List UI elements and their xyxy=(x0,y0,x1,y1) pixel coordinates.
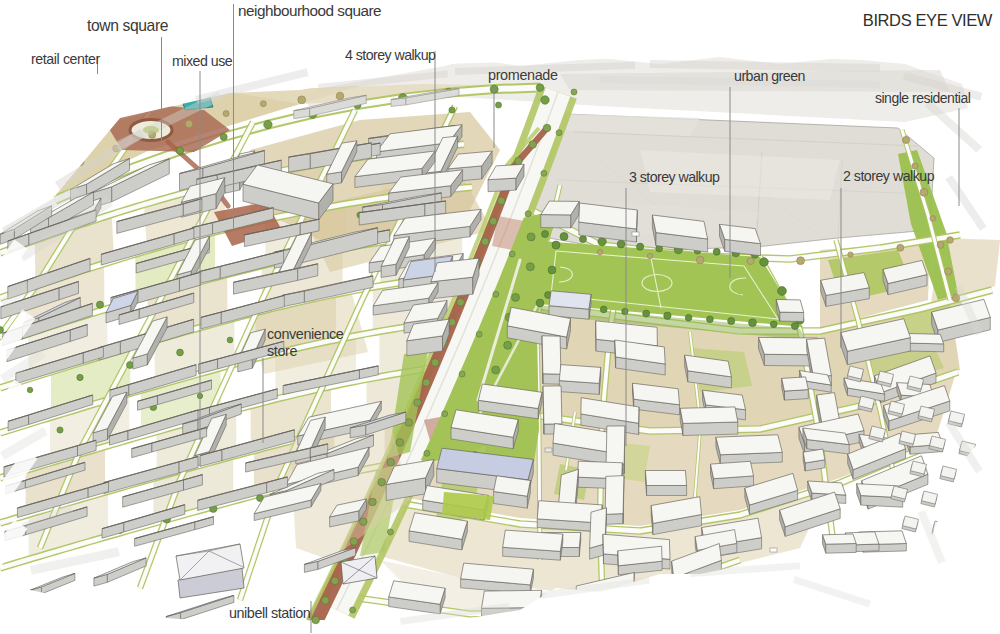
svg-text:convenience: convenience xyxy=(267,326,344,342)
svg-text:promenade: promenade xyxy=(488,67,558,83)
svg-text:unibell station: unibell station xyxy=(229,605,311,621)
svg-text:store: store xyxy=(267,343,297,359)
svg-text:retail center: retail center xyxy=(31,51,101,67)
svg-text:2 storey walkup: 2 storey walkup xyxy=(843,168,935,184)
svg-text:urban green: urban green xyxy=(734,68,805,84)
svg-text:4 storey walkup: 4 storey walkup xyxy=(345,47,436,63)
svg-text:3 storey walkup: 3 storey walkup xyxy=(629,169,720,185)
svg-text:mixed use: mixed use xyxy=(172,53,233,69)
svg-text:neighbourhood square: neighbourhood square xyxy=(238,2,381,19)
svg-text:BIRDS EYE VIEW: BIRDS EYE VIEW xyxy=(863,11,993,29)
svg-text:town square: town square xyxy=(87,17,169,34)
svg-text:single residential: single residential xyxy=(875,90,971,106)
